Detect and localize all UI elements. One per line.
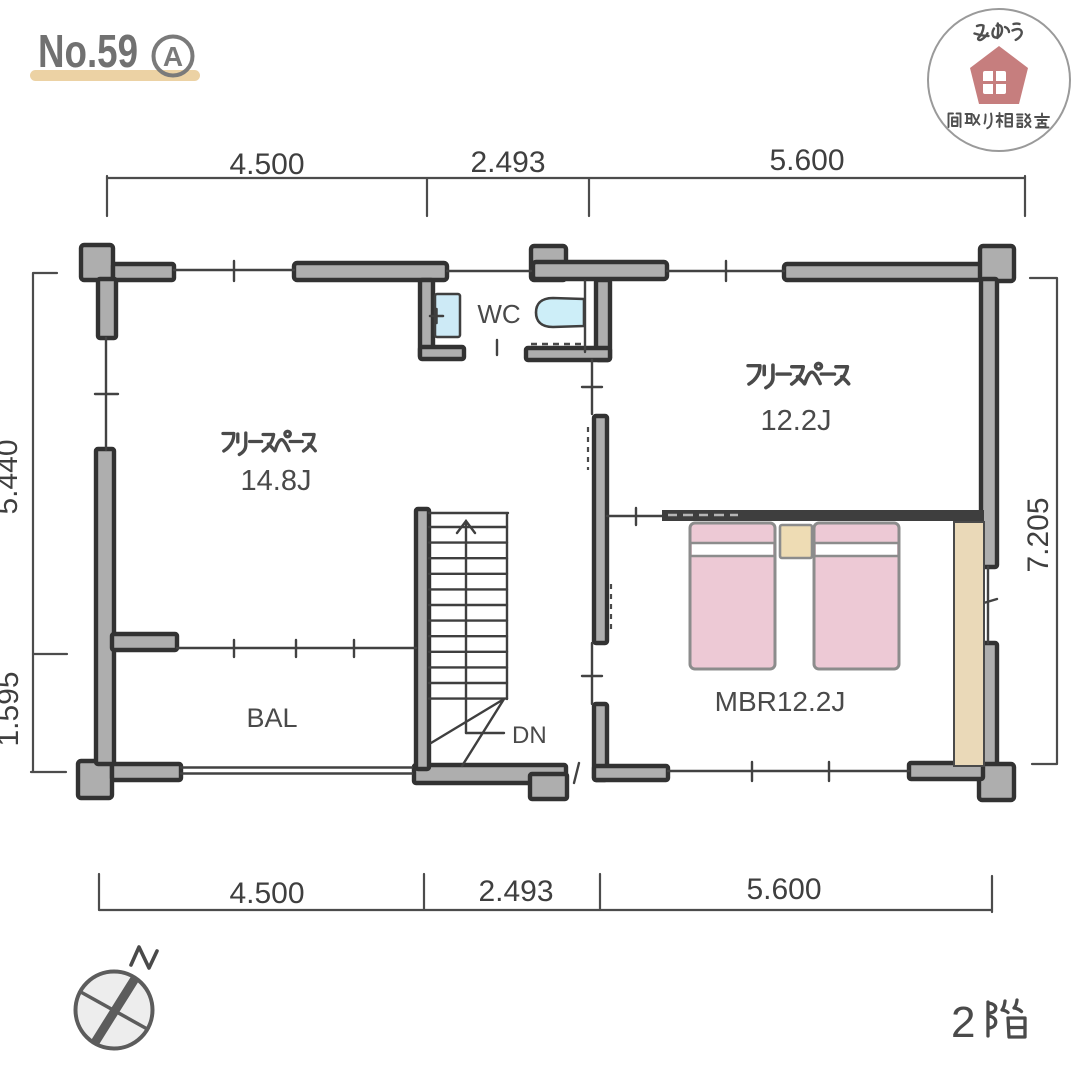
svg-text:MBR12.2J: MBR12.2J bbox=[715, 686, 846, 717]
svg-text:WC: WC bbox=[477, 299, 520, 329]
svg-text:1.595: 1.595 bbox=[0, 671, 25, 746]
svg-text:2: 2 bbox=[951, 998, 975, 1047]
svg-text:No.59: No.59 bbox=[38, 25, 138, 77]
svg-text:2.493: 2.493 bbox=[478, 875, 553, 908]
svg-text:2.493: 2.493 bbox=[470, 146, 545, 179]
svg-text:DN: DN bbox=[512, 722, 547, 749]
svg-text:7.205: 7.205 bbox=[1022, 497, 1055, 572]
svg-text:14.8J: 14.8J bbox=[241, 465, 312, 497]
svg-text:5.440: 5.440 bbox=[0, 439, 24, 514]
svg-text:A: A bbox=[163, 41, 183, 72]
svg-text:12.2J: 12.2J bbox=[761, 405, 832, 437]
svg-text:5.600: 5.600 bbox=[746, 873, 821, 906]
svg-text:4.500: 4.500 bbox=[229, 877, 304, 910]
svg-text:BAL: BAL bbox=[246, 703, 297, 733]
svg-text:5.600: 5.600 bbox=[769, 144, 844, 177]
svg-text:4.500: 4.500 bbox=[229, 148, 304, 181]
